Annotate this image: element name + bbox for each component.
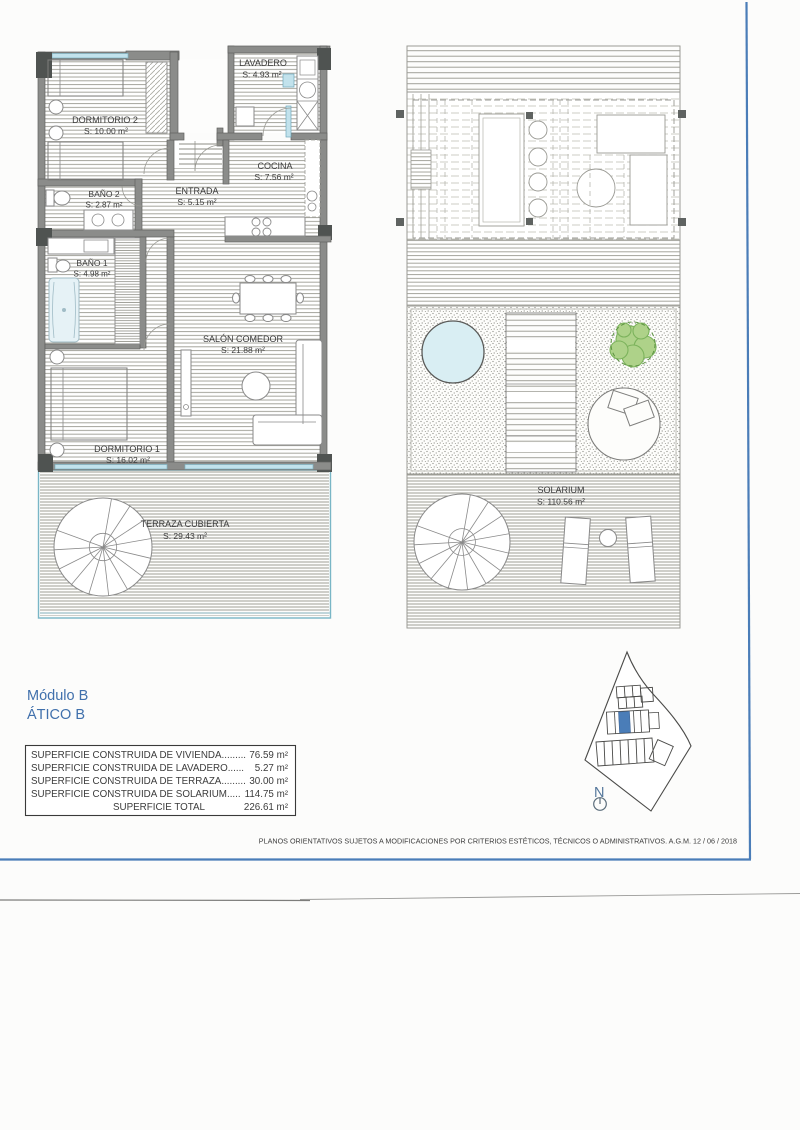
svg-text:S: 16.02 m²: S: 16.02 m² xyxy=(106,455,150,465)
svg-text:SOLARIUM: SOLARIUM xyxy=(537,485,584,495)
svg-text:Módulo B: Módulo B xyxy=(27,688,88,704)
svg-text:S: 29.43 m²: S: 29.43 m² xyxy=(163,531,207,541)
svg-text:BAÑO 2: BAÑO 2 xyxy=(88,189,119,199)
svg-text:S: 21.88 m²: S: 21.88 m² xyxy=(221,345,265,355)
svg-text:TERRAZA CUBIERTA: TERRAZA CUBIERTA xyxy=(141,519,230,529)
svg-text:DORMITORIO 1: DORMITORIO 1 xyxy=(94,444,160,454)
svg-text:S: 10.00 m²: S: 10.00 m² xyxy=(84,126,128,136)
svg-text:226.61 m²: 226.61 m² xyxy=(244,802,289,813)
svg-text:SUPERFICIE CONSTRUIDA DE SOLAR: SUPERFICIE CONSTRUIDA DE SOLARIUM..... xyxy=(31,789,241,800)
svg-text:SUPERFICIE CONSTRUIDA DE LAVAD: SUPERFICIE CONSTRUIDA DE LAVADERO...... xyxy=(31,763,244,774)
svg-text:S: 4.93 m²: S: 4.93 m² xyxy=(242,70,281,80)
svg-text:SUPERFICIE TOTAL: SUPERFICIE TOTAL xyxy=(113,802,206,813)
svg-text:76.59 m²: 76.59 m² xyxy=(249,750,288,761)
svg-text:ENTRADA: ENTRADA xyxy=(175,186,218,196)
svg-text:SUPERFICIE CONSTRUIDA DE TERRA: SUPERFICIE CONSTRUIDA DE TERRAZA........… xyxy=(31,776,246,787)
svg-text:COCINA: COCINA xyxy=(257,161,292,171)
svg-text:SALÓN COMEDOR: SALÓN COMEDOR xyxy=(203,334,284,344)
svg-text:5.27 m²: 5.27 m² xyxy=(255,763,289,774)
svg-text:ÁTICO B: ÁTICO B xyxy=(27,706,85,723)
svg-text:S: 110.56 m²: S: 110.56 m² xyxy=(537,497,585,507)
svg-text:114.75 m²: 114.75 m² xyxy=(245,789,289,800)
svg-text:S: 4.98 m²: S: 4.98 m² xyxy=(74,270,111,279)
svg-text:PLANOS ORIENTATIVOS SUJETOS A: PLANOS ORIENTATIVOS SUJETOS A MODIFICACI… xyxy=(259,837,737,846)
svg-text:SUPERFICIE CONSTRUIDA DE VIVIE: SUPERFICIE CONSTRUIDA DE VIVIENDA.......… xyxy=(31,750,246,761)
svg-text:LAVADERO: LAVADERO xyxy=(239,58,287,68)
svg-text:S: 5.15 m²: S: 5.15 m² xyxy=(177,197,216,207)
svg-text:BAÑO 1: BAÑO 1 xyxy=(76,258,107,268)
svg-text:S: 2.87 m²: S: 2.87 m² xyxy=(86,201,123,210)
svg-text:S: 7.56 m²: S: 7.56 m² xyxy=(254,172,293,182)
svg-text:DORMITORIO 2: DORMITORIO 2 xyxy=(72,115,138,125)
svg-text:30.00 m²: 30.00 m² xyxy=(249,776,288,787)
